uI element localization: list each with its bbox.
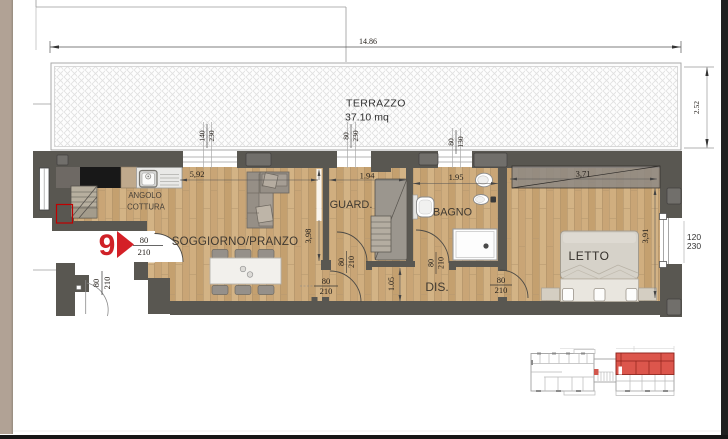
svg-text:210: 210 [495,285,508,295]
svg-text:DIS.: DIS. [425,280,448,294]
svg-text:1.94: 1.94 [360,171,376,181]
svg-text:9: 9 [99,229,116,262]
svg-text:80: 80 [427,259,436,267]
svg-text:80: 80 [497,275,506,285]
svg-text:14.86: 14.86 [359,37,377,46]
svg-text:80: 80 [140,235,149,245]
svg-text:3,71: 3,71 [576,169,591,179]
svg-text:2.52: 2.52 [692,101,701,114]
svg-text:210: 210 [138,247,151,257]
svg-text:80: 80 [91,279,101,288]
svg-text:80: 80 [337,258,346,266]
svg-text:3,98: 3,98 [303,229,313,244]
svg-text:230: 230 [207,130,216,142]
svg-text:140: 140 [198,130,207,142]
svg-text:GUARD.: GUARD. [330,199,373,211]
svg-text:ANGOLO: ANGOLO [128,191,161,200]
svg-text:LETTO: LETTO [569,249,610,263]
svg-text:TERRAZZO: TERRAZZO [346,98,406,110]
svg-text:3,91: 3,91 [640,229,650,244]
svg-text:COTTURA: COTTURA [127,203,165,212]
svg-text:1.05: 1.05 [387,277,396,291]
svg-text:80: 80 [322,276,331,286]
svg-text:210: 210 [437,257,446,269]
svg-text:210: 210 [102,277,112,290]
svg-text:SOGGIORNO/PRANZO: SOGGIORNO/PRANZO [172,236,299,248]
svg-text:210: 210 [320,286,333,296]
svg-text:210: 210 [347,256,356,268]
svg-text:5,92: 5,92 [190,169,205,179]
svg-text:1.95: 1.95 [449,172,464,182]
svg-text:BAGNO: BAGNO [433,207,472,219]
svg-text:80: 80 [342,132,351,140]
svg-text:80: 80 [447,138,456,146]
svg-text:230: 230 [687,241,701,251]
svg-text:230: 230 [351,130,360,142]
svg-text:130: 130 [456,136,465,148]
svg-text:37.10 mq: 37.10 mq [345,112,389,124]
